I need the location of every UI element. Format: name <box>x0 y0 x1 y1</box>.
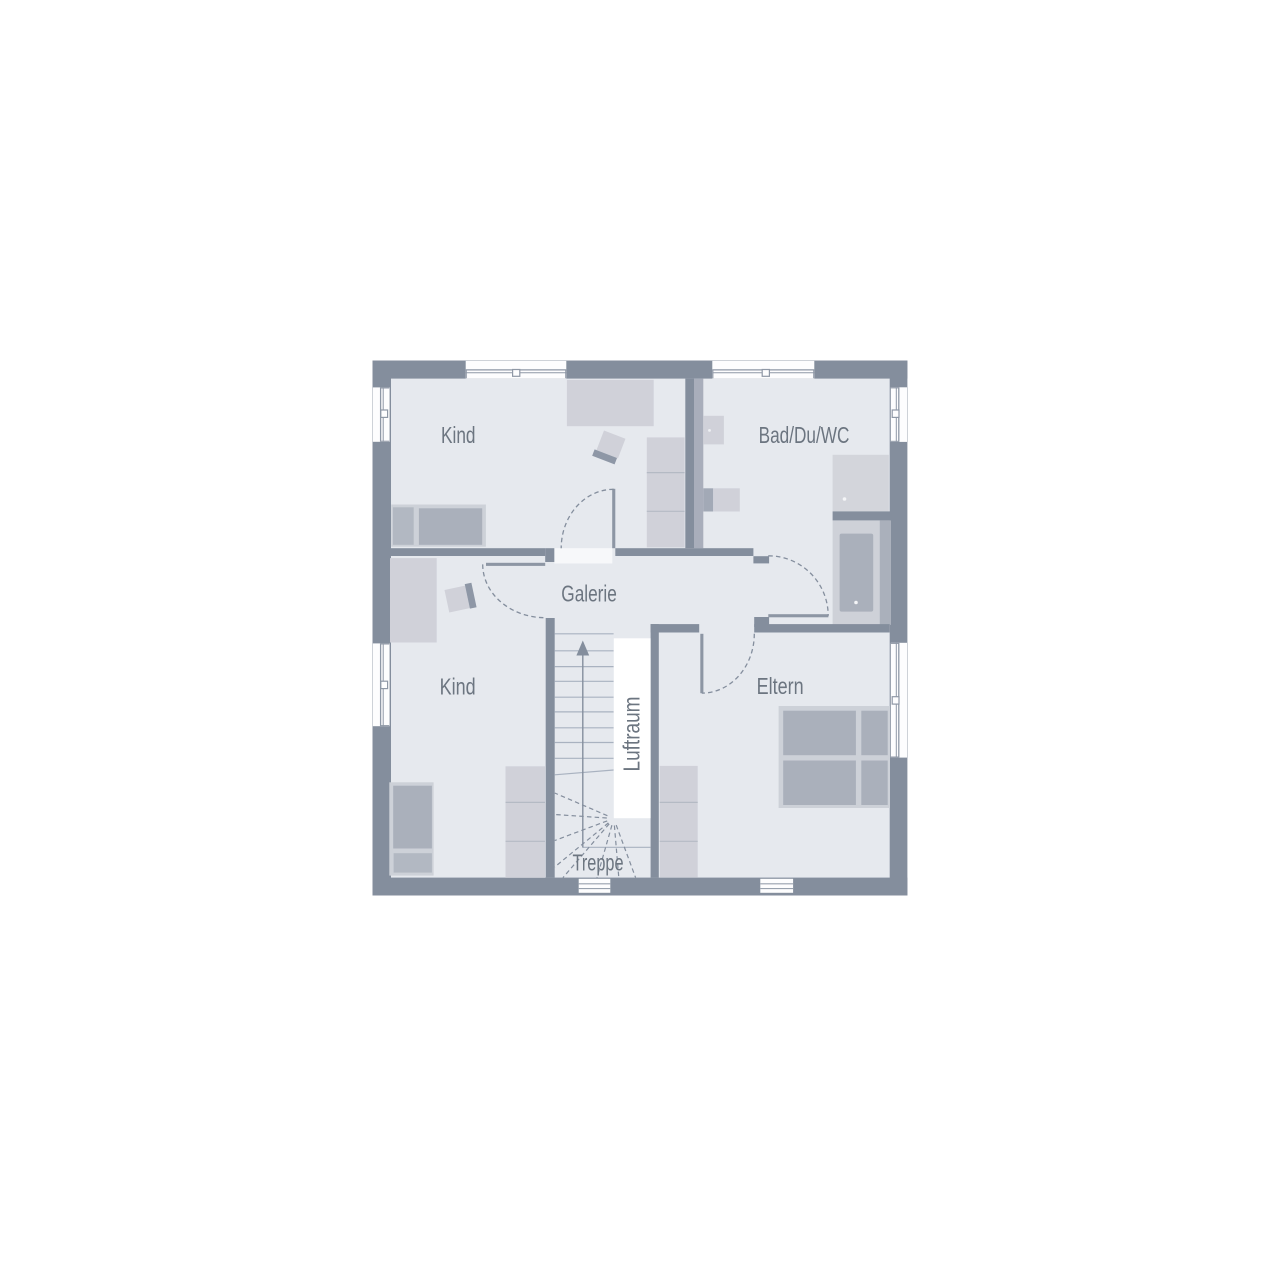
svg-text:Treppe: Treppe <box>573 850 624 876</box>
svg-text:Kind: Kind <box>440 674 476 700</box>
svg-text:Eltern: Eltern <box>757 673 804 699</box>
svg-text:Luftraum: Luftraum <box>619 697 645 772</box>
svg-text:Kind: Kind <box>441 422 476 448</box>
svg-text:Bad/Du/WC: Bad/Du/WC <box>759 422 850 448</box>
svg-text:Galerie: Galerie <box>561 581 617 607</box>
